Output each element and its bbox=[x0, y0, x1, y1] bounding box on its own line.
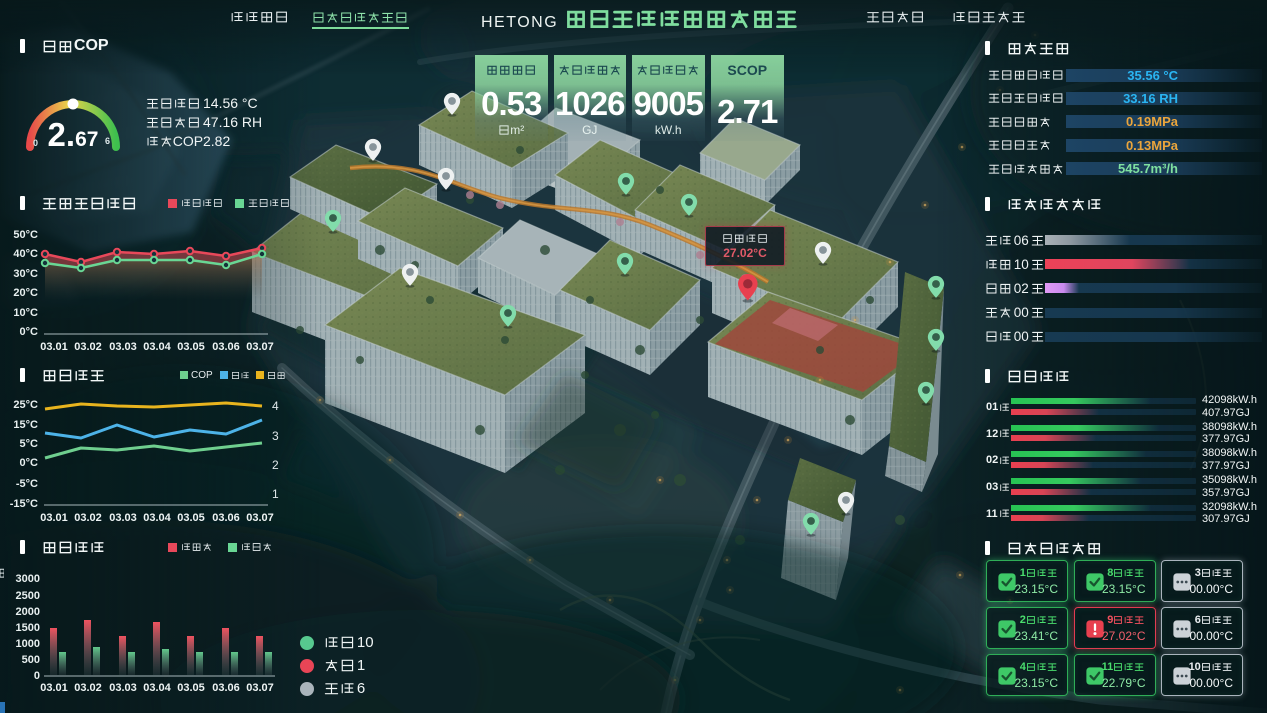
svg-text:0: 0 bbox=[34, 670, 40, 682]
svg-text:2500: 2500 bbox=[16, 590, 40, 602]
svg-text:03.06: 03.06 bbox=[212, 682, 240, 694]
svg-text:03.04: 03.04 bbox=[143, 682, 171, 694]
svg-text:03.01: 03.01 bbox=[40, 682, 68, 694]
svg-text:3000: 3000 bbox=[16, 573, 40, 585]
svg-text:1000: 1000 bbox=[16, 638, 40, 650]
svg-text:2000: 2000 bbox=[16, 606, 40, 618]
svg-text:03.02: 03.02 bbox=[74, 682, 102, 694]
svg-text:03.07: 03.07 bbox=[246, 682, 274, 694]
svg-text:03.03: 03.03 bbox=[109, 682, 137, 694]
svg-text:500: 500 bbox=[22, 654, 40, 666]
svg-text:1500: 1500 bbox=[16, 622, 40, 634]
svg-text:03.05: 03.05 bbox=[177, 682, 205, 694]
